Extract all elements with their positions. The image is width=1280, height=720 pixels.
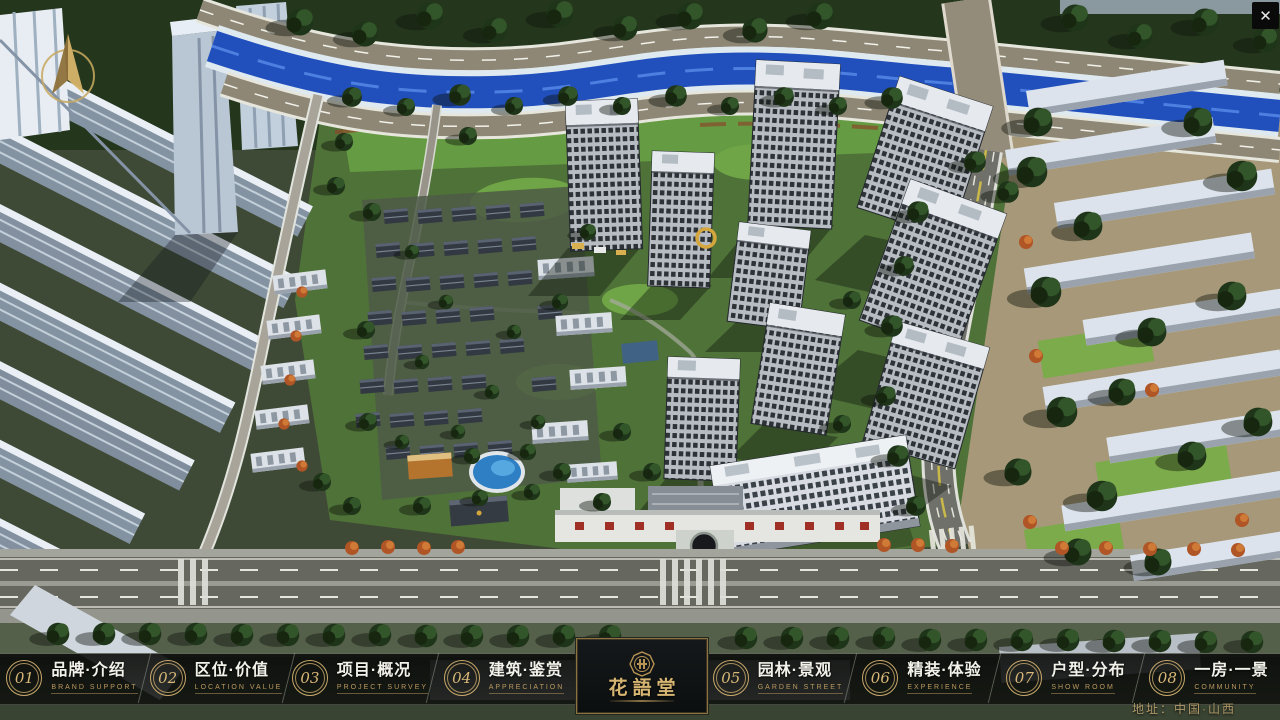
logo-seal-icon [629, 651, 655, 677]
close-button[interactable]: ✕ [1252, 2, 1279, 29]
nav-item-label: 品牌·介绍 [51, 662, 125, 680]
nav-item-interior-experience[interactable]: 06 精装·体验 EXPERIENCE [850, 653, 994, 703]
nav-item-sublabel: SHOW ROOM [1051, 684, 1115, 694]
aerial-render [0, 0, 1280, 720]
nav-item-floorplan-distribution[interactable]: 07 户型·分布 SHOW ROOM [994, 653, 1138, 703]
nav-item-sublabel: PROJECT SURVEY [337, 684, 428, 694]
logo-title: 花語堂 [603, 679, 680, 698]
nav-item-label: 区位·价值 [195, 662, 269, 680]
nav-item-brand-intro[interactable]: 01 品牌·介绍 BRAND SUPPORT [0, 653, 144, 703]
nav-item-sublabel: LOCATION VALUE [195, 684, 283, 694]
close-icon: ✕ [1259, 7, 1272, 25]
project-logo: 花語堂 [576, 638, 708, 714]
nav-item-sublabel: COMMUNITY [1194, 684, 1255, 694]
nav-number-badge: 01 [6, 660, 42, 696]
nav-item-sublabel: APPRECIATION [489, 684, 565, 694]
nav-number-badge: 05 [713, 660, 749, 696]
nav-item-location-value[interactable]: 02 区位·价值 LOCATION VALUE [144, 653, 288, 703]
nav-number-badge: 02 [150, 660, 186, 696]
nav-item-garden-landscape[interactable]: 05 园林·景观 GARDEN STREET [706, 653, 850, 703]
nav-item-label: 一房·一景 [1194, 662, 1268, 680]
nav-number-badge: 07 [1006, 660, 1042, 696]
logo-caption [610, 700, 674, 702]
nav-item-label: 项目·概况 [337, 662, 411, 680]
nav-number-badge: 06 [862, 660, 898, 696]
nav-item-sublabel: GARDEN STREET [758, 684, 844, 694]
nav-item-label: 精装·体验 [907, 662, 981, 680]
nav-number-badge: 03 [292, 660, 328, 696]
nav-number-badge: 08 [1149, 660, 1185, 696]
compass-north-icon [34, 28, 102, 114]
nav-item-architecture[interactable]: 04 建筑·鉴赏 APPRECIATION [432, 653, 576, 703]
nav-item-label: 户型·分布 [1051, 662, 1125, 680]
nav-item-room-view[interactable]: 08 一房·一景 COMMUNITY [1138, 653, 1280, 703]
nav-item-label: 建筑·鉴赏 [489, 662, 563, 680]
nav-item-project-survey[interactable]: 03 项目·概况 PROJECT SURVEY [288, 653, 432, 703]
presentation-app: ✕ 01 品牌·介绍 BRAND SUPPORT 02 区位·价值 LOCATI… [0, 0, 1280, 720]
project-address: 地址：中国·山西 [1132, 700, 1236, 717]
nav-item-label: 园林·景观 [758, 662, 832, 680]
nav-number-badge: 04 [444, 660, 480, 696]
nav-item-sublabel: BRAND SUPPORT [51, 684, 137, 694]
nav-item-sublabel: EXPERIENCE [907, 684, 972, 694]
